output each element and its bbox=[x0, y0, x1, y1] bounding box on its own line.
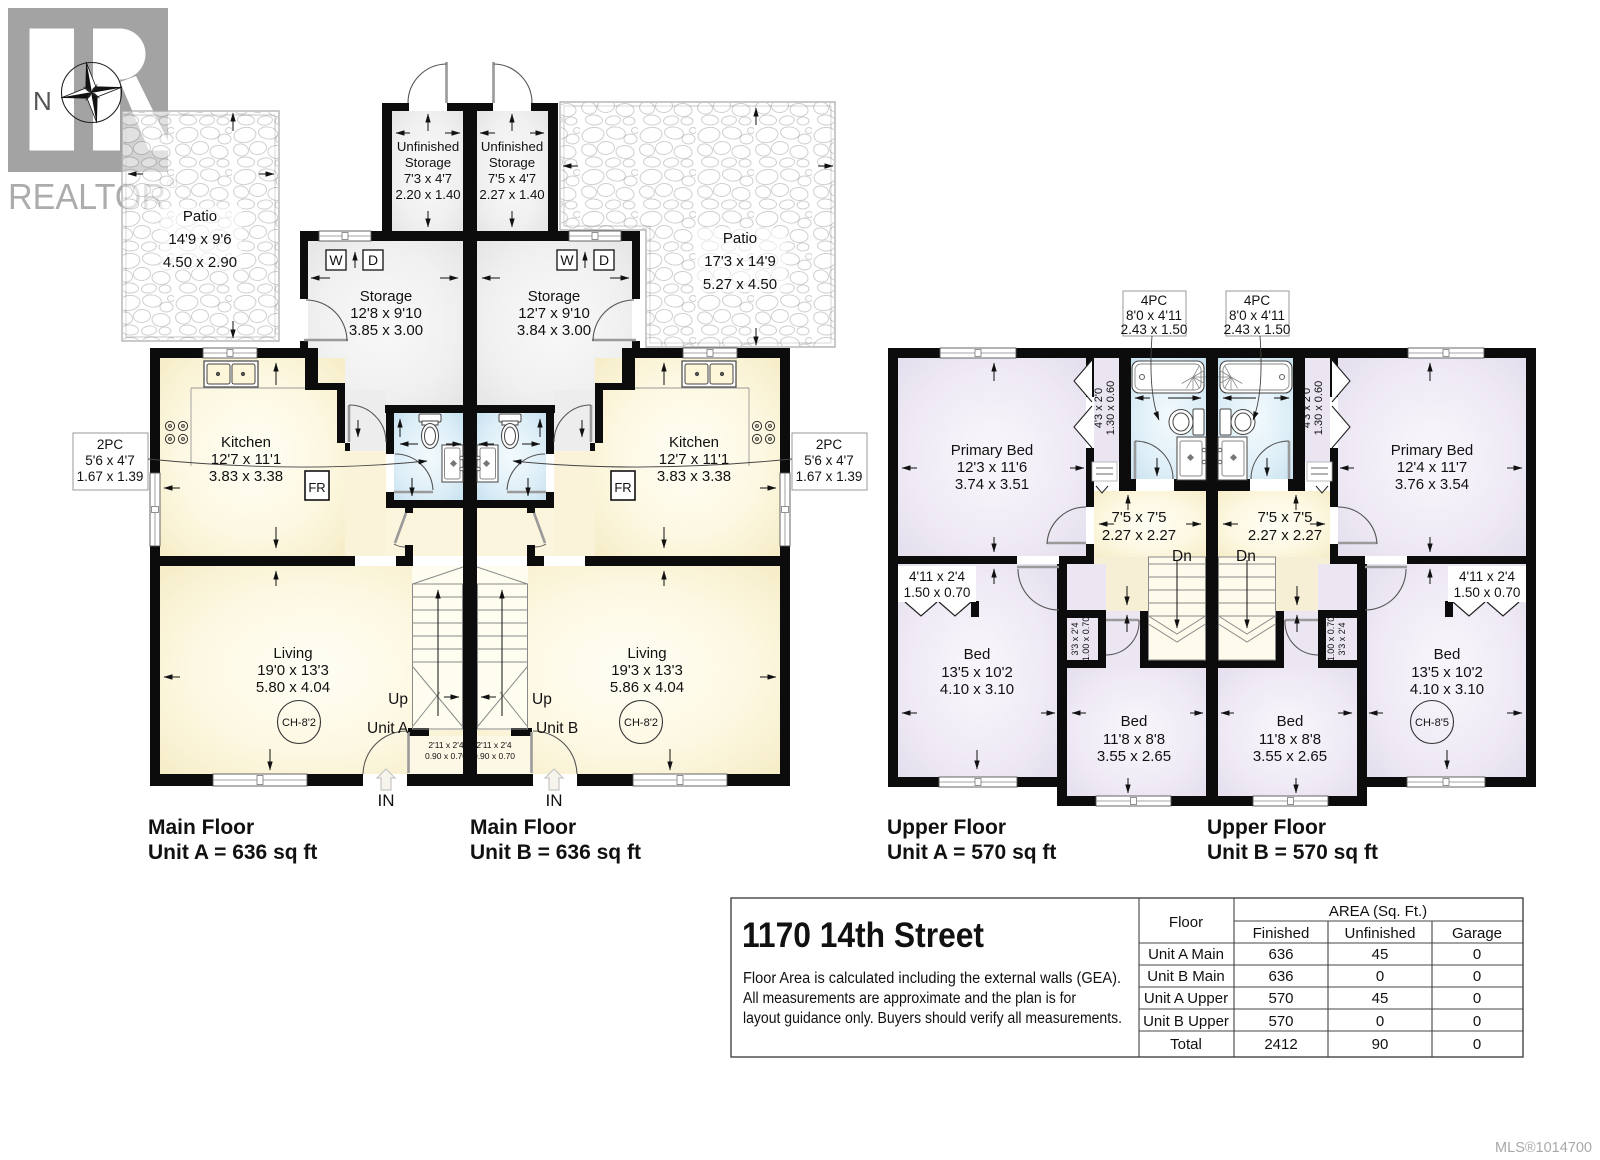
svg-text:7'5 x 7'5: 7'5 x 7'5 bbox=[1112, 509, 1167, 526]
svg-text:Kitchen: Kitchen bbox=[221, 434, 271, 451]
svg-text:Bed: Bed bbox=[964, 646, 991, 663]
svg-text:D: D bbox=[599, 252, 609, 268]
svg-text:3.83 x 3.38: 3.83 x 3.38 bbox=[657, 468, 731, 485]
svg-text:3.55 x 2.65: 3.55 x 2.65 bbox=[1097, 748, 1171, 765]
svg-text:Patio: Patio bbox=[183, 208, 217, 225]
svg-text:1.67 x 1.39: 1.67 x 1.39 bbox=[77, 469, 144, 484]
svg-text:Unit B Main: Unit B Main bbox=[1147, 968, 1225, 985]
svg-text:Unfinished: Unfinished bbox=[1345, 925, 1416, 942]
svg-text:Bed: Bed bbox=[1121, 713, 1148, 730]
svg-text:3.85 x 3.00: 3.85 x 3.00 bbox=[349, 322, 423, 339]
svg-text:1.50 x 0.70: 1.50 x 0.70 bbox=[1454, 585, 1521, 600]
svg-text:Kitchen: Kitchen bbox=[669, 434, 719, 451]
svg-text:Unit B = 636 sq ft: Unit B = 636 sq ft bbox=[470, 841, 641, 864]
svg-text:Storage: Storage bbox=[528, 288, 581, 305]
svg-text:Unfinished: Unfinished bbox=[397, 139, 459, 154]
svg-text:7'3 x 4'7: 7'3 x 4'7 bbox=[404, 171, 452, 186]
svg-text:IN: IN bbox=[378, 791, 395, 810]
svg-text:AREA (Sq. Ft.): AREA (Sq. Ft.) bbox=[1329, 903, 1427, 920]
svg-text:2.43 x 1.50: 2.43 x 1.50 bbox=[1224, 322, 1291, 337]
svg-text:4PC: 4PC bbox=[1141, 293, 1168, 308]
svg-text:Floor Area is calculated inclu: Floor Area is calculated including the e… bbox=[743, 970, 1121, 987]
svg-text:Finished: Finished bbox=[1253, 925, 1310, 942]
svg-text:13'5 x 10'2: 13'5 x 10'2 bbox=[1411, 664, 1483, 681]
svg-text:Unit A = 570 sq ft: Unit A = 570 sq ft bbox=[887, 841, 1056, 864]
svg-text:2PC: 2PC bbox=[97, 437, 124, 452]
svg-text:CH-8'2: CH-8'2 bbox=[282, 717, 316, 729]
svg-text:Living: Living bbox=[627, 645, 666, 662]
svg-text:5.80 x 4.04: 5.80 x 4.04 bbox=[256, 679, 330, 696]
svg-text:2.27 x 2.27: 2.27 x 2.27 bbox=[1102, 527, 1176, 544]
svg-text:5.86 x 4.04: 5.86 x 4.04 bbox=[610, 679, 684, 696]
svg-text:0: 0 bbox=[1473, 990, 1481, 1007]
svg-text:Unit A: Unit A bbox=[367, 720, 409, 737]
svg-text:Bed: Bed bbox=[1434, 646, 1461, 663]
svg-text:636: 636 bbox=[1268, 946, 1293, 963]
svg-text:Unit B = 570 sq ft: Unit B = 570 sq ft bbox=[1207, 841, 1378, 864]
svg-text:45: 45 bbox=[1372, 990, 1389, 1007]
svg-text:Dn: Dn bbox=[1172, 548, 1192, 565]
svg-text:3.76 x 3.54: 3.76 x 3.54 bbox=[1395, 476, 1469, 493]
svg-text:12'7 x 9'10: 12'7 x 9'10 bbox=[518, 305, 590, 322]
svg-text:11'8 x 8'8: 11'8 x 8'8 bbox=[1259, 731, 1321, 748]
svg-text:0.90 x 0.70: 0.90 x 0.70 bbox=[425, 751, 467, 761]
svg-text:W: W bbox=[329, 252, 343, 268]
svg-text:4PC: 4PC bbox=[1244, 293, 1271, 308]
svg-text:Garage: Garage bbox=[1452, 925, 1502, 942]
svg-text:90: 90 bbox=[1372, 1036, 1389, 1053]
svg-text:19'0 x 13'3: 19'0 x 13'3 bbox=[257, 662, 329, 679]
svg-text:Living: Living bbox=[273, 645, 312, 662]
svg-text:All measurements are approxima: All measurements are approximate and the… bbox=[743, 990, 1076, 1007]
svg-text:Unit A = 636 sq ft: Unit A = 636 sq ft bbox=[148, 841, 317, 864]
svg-text:8'0 x 4'11: 8'0 x 4'11 bbox=[1126, 308, 1182, 323]
svg-text:4'3 x 2'0: 4'3 x 2'0 bbox=[1301, 388, 1313, 428]
svg-text:Main Floor: Main Floor bbox=[470, 816, 576, 839]
svg-text:2.27 x 1.40: 2.27 x 1.40 bbox=[479, 187, 544, 202]
svg-text:4.10 x 3.10: 4.10 x 3.10 bbox=[940, 681, 1014, 698]
svg-text:2.27 x 2.27: 2.27 x 2.27 bbox=[1248, 527, 1322, 544]
svg-text:1.67 x 1.39: 1.67 x 1.39 bbox=[796, 469, 863, 484]
svg-text:4.50 x 2.90: 4.50 x 2.90 bbox=[163, 254, 237, 271]
svg-text:Unit B: Unit B bbox=[536, 720, 578, 737]
svg-text:12'4 x 11'7: 12'4 x 11'7 bbox=[1397, 459, 1468, 476]
svg-text:11'8 x 8'8: 11'8 x 8'8 bbox=[1103, 731, 1165, 748]
svg-text:1.50 x 0.70: 1.50 x 0.70 bbox=[904, 585, 971, 600]
svg-text:13'5 x 10'2: 13'5 x 10'2 bbox=[941, 664, 1013, 681]
svg-text:FR: FR bbox=[308, 480, 325, 495]
svg-text:1170 14th Street: 1170 14th Street bbox=[742, 916, 984, 955]
svg-text:7'5 x 4'7: 7'5 x 4'7 bbox=[488, 171, 536, 186]
svg-text:5.27 x 4.50: 5.27 x 4.50 bbox=[703, 276, 777, 293]
svg-text:Primary Bed: Primary Bed bbox=[1391, 442, 1474, 459]
svg-text:2PC: 2PC bbox=[816, 437, 843, 452]
svg-text:0: 0 bbox=[1376, 1013, 1384, 1030]
svg-text:Unit A Upper: Unit A Upper bbox=[1144, 990, 1228, 1007]
svg-text:D: D bbox=[368, 252, 378, 268]
svg-text:17'3 x 14'9: 17'3 x 14'9 bbox=[704, 253, 776, 270]
svg-text:4.10 x 3.10: 4.10 x 3.10 bbox=[1410, 681, 1484, 698]
svg-text:Main Floor: Main Floor bbox=[148, 816, 254, 839]
svg-text:Upper Floor: Upper Floor bbox=[1207, 816, 1326, 839]
svg-text:W: W bbox=[560, 252, 574, 268]
svg-text:Upper Floor: Upper Floor bbox=[887, 816, 1006, 839]
svg-text:12'7 x 11'1: 12'7 x 11'1 bbox=[659, 451, 730, 468]
svg-text:570: 570 bbox=[1268, 1013, 1293, 1030]
svg-text:570: 570 bbox=[1268, 990, 1293, 1007]
svg-text:IN: IN bbox=[546, 791, 563, 810]
svg-text:FR: FR bbox=[614, 480, 631, 495]
svg-text:MLS®1014700: MLS®1014700 bbox=[1495, 1140, 1592, 1155]
svg-text:Bed: Bed bbox=[1277, 713, 1304, 730]
svg-text:4'11 x 2'4: 4'11 x 2'4 bbox=[1459, 569, 1515, 584]
svg-text:2.43 x 1.50: 2.43 x 1.50 bbox=[1121, 322, 1188, 337]
svg-text:14'9 x 9'6: 14'9 x 9'6 bbox=[168, 231, 231, 248]
svg-text:12'3 x 11'6: 12'3 x 11'6 bbox=[957, 459, 1028, 476]
svg-text:3.84 x 3.00: 3.84 x 3.00 bbox=[517, 322, 591, 339]
svg-text:N: N bbox=[33, 86, 52, 116]
svg-text:Floor: Floor bbox=[1169, 914, 1203, 931]
svg-text:19'3 x 13'3: 19'3 x 13'3 bbox=[611, 662, 683, 679]
svg-text:4'11 x 2'4: 4'11 x 2'4 bbox=[909, 569, 965, 584]
svg-text:2.20 x 1.40: 2.20 x 1.40 bbox=[395, 187, 460, 202]
svg-text:Storage: Storage bbox=[405, 155, 451, 170]
svg-text:Storage: Storage bbox=[360, 288, 413, 305]
svg-text:12'7 x 11'1: 12'7 x 11'1 bbox=[211, 451, 282, 468]
svg-text:Primary Bed: Primary Bed bbox=[951, 442, 1034, 459]
svg-text:Unit A Main: Unit A Main bbox=[1148, 946, 1224, 963]
svg-text:3'3 x 2'4: 3'3 x 2'4 bbox=[1070, 623, 1080, 656]
svg-text:Up: Up bbox=[388, 691, 408, 708]
svg-text:3'3 x 2'4: 3'3 x 2'4 bbox=[1337, 623, 1347, 656]
svg-text:2'11 x 2'4: 2'11 x 2'4 bbox=[476, 740, 511, 750]
svg-text:0: 0 bbox=[1473, 1013, 1481, 1030]
svg-text:CH-8'5: CH-8'5 bbox=[1415, 717, 1449, 729]
svg-text:0: 0 bbox=[1473, 946, 1481, 963]
svg-text:636: 636 bbox=[1268, 968, 1293, 985]
svg-text:2'11 x 2'4: 2'11 x 2'4 bbox=[428, 740, 463, 750]
svg-text:1.30 x 0.60: 1.30 x 0.60 bbox=[1105, 381, 1117, 435]
svg-text:45: 45 bbox=[1372, 946, 1389, 963]
svg-text:5'6 x 4'7: 5'6 x 4'7 bbox=[804, 453, 853, 468]
svg-text:0: 0 bbox=[1376, 968, 1384, 985]
svg-text:0: 0 bbox=[1473, 968, 1481, 985]
svg-text:1.30 x 0.60: 1.30 x 0.60 bbox=[1313, 381, 1325, 435]
svg-text:Unit B Upper: Unit B Upper bbox=[1143, 1013, 1229, 1030]
svg-text:Storage: Storage bbox=[489, 155, 535, 170]
svg-text:5'6 x 4'7: 5'6 x 4'7 bbox=[85, 453, 134, 468]
svg-text:12'8 x 9'10: 12'8 x 9'10 bbox=[350, 305, 422, 322]
svg-text:3.55 x 2.65: 3.55 x 2.65 bbox=[1253, 748, 1327, 765]
svg-text:1.00 x 0.70: 1.00 x 0.70 bbox=[1081, 617, 1091, 662]
svg-text:Up: Up bbox=[532, 691, 552, 708]
svg-text:4'3 x 2'0: 4'3 x 2'0 bbox=[1093, 388, 1105, 428]
svg-text:CH-8'2: CH-8'2 bbox=[624, 717, 658, 729]
svg-text:2412: 2412 bbox=[1264, 1036, 1297, 1053]
svg-text:Unfinished: Unfinished bbox=[481, 139, 543, 154]
svg-text:Dn: Dn bbox=[1236, 548, 1256, 565]
svg-text:8'0 x 4'11: 8'0 x 4'11 bbox=[1229, 308, 1285, 323]
svg-text:3.74 x 3.51: 3.74 x 3.51 bbox=[955, 476, 1029, 493]
svg-text:Patio: Patio bbox=[723, 230, 757, 247]
svg-text:0.90 x 0.70: 0.90 x 0.70 bbox=[473, 751, 515, 761]
svg-text:0: 0 bbox=[1473, 1036, 1481, 1053]
svg-text:layout guidance only. Buyers s: layout guidance only. Buyers should veri… bbox=[743, 1010, 1122, 1027]
svg-text:3.83 x 3.38: 3.83 x 3.38 bbox=[209, 468, 283, 485]
svg-text:1.00 x 0.70: 1.00 x 0.70 bbox=[1326, 617, 1336, 662]
svg-text:7'5 x 7'5: 7'5 x 7'5 bbox=[1258, 509, 1313, 526]
svg-text:Total: Total bbox=[1170, 1036, 1202, 1053]
